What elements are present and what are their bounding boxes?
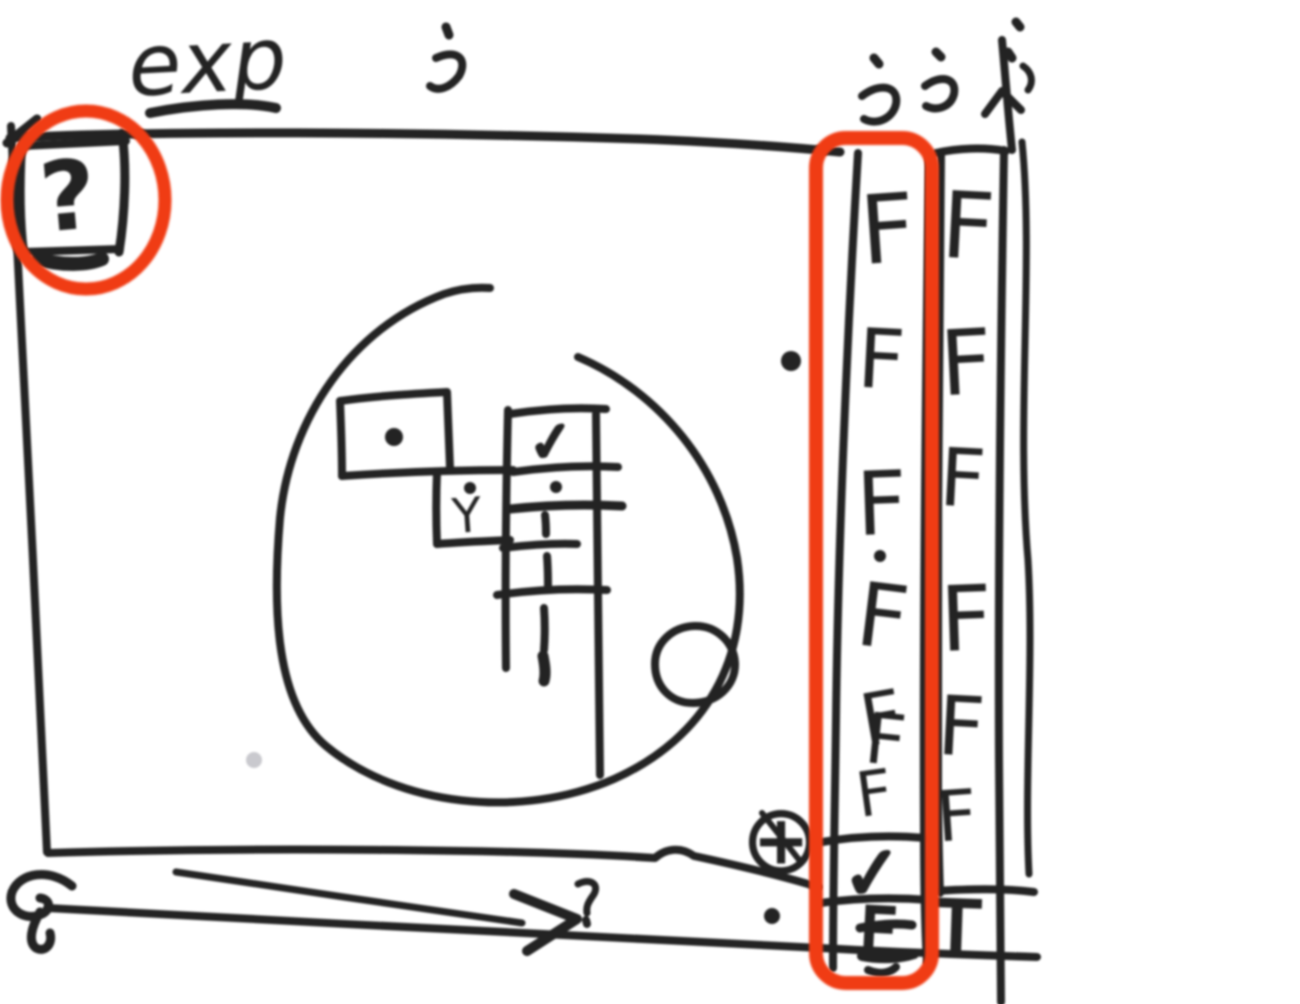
y-mark-glyph: Y — [449, 487, 484, 545]
dot-rectangle — [340, 392, 513, 476]
col-b-f-5: F — [935, 679, 987, 776]
col-a-f-2: F — [855, 312, 907, 409]
col-a-f-1: F — [857, 173, 919, 287]
sketch-drawing: exp — [0, 0, 1300, 1004]
col-a-f-3: F — [855, 451, 909, 556]
question-glyph: ? — [35, 138, 100, 254]
faint-dot — [246, 752, 262, 768]
col-a-f-4: F — [851, 562, 914, 670]
col-b-f-2: F — [938, 310, 995, 418]
col-b-f-3: F — [937, 431, 988, 526]
col-b-f-4: F — [938, 566, 993, 673]
squiggle-mark-top-middle — [430, 27, 462, 89]
stray-dot — [781, 351, 801, 371]
checkbox-check-glyph: ✓ — [525, 408, 577, 475]
small-circle — [655, 626, 735, 703]
band-top-line — [48, 850, 818, 887]
col-b-f-1: F — [939, 172, 997, 282]
col-a-dot — [874, 550, 886, 562]
col-b-f-6: F — [934, 774, 980, 859]
band-dot — [764, 908, 780, 924]
sketch-canvas: exp — [0, 0, 1300, 1004]
